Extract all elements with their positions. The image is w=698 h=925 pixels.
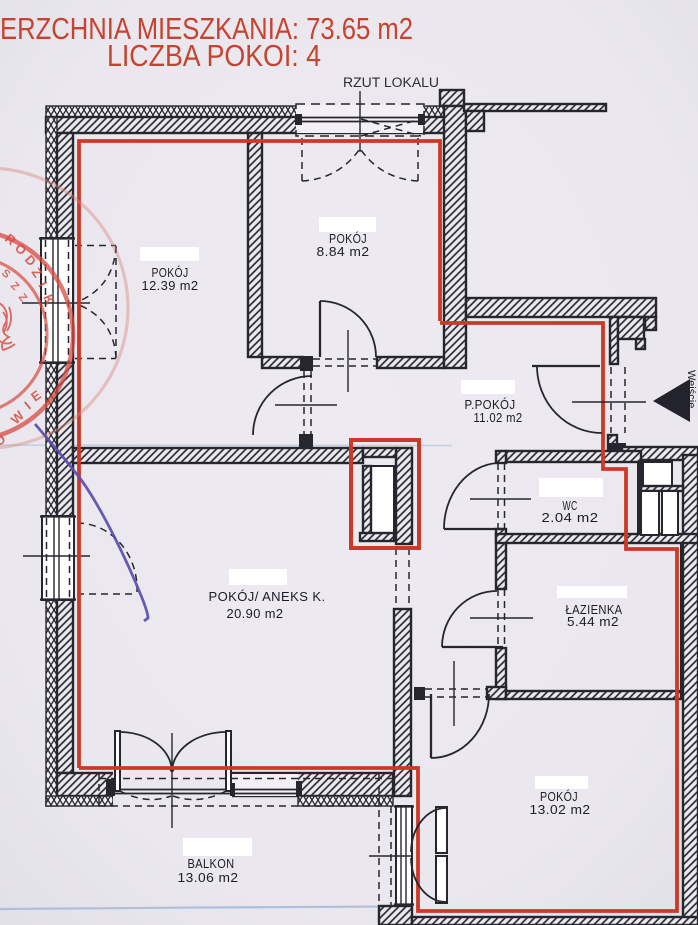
svg-text:POKÓJ: POKÓJ [152, 265, 189, 280]
svg-text:20.90 m2: 20.90 m2 [227, 607, 284, 621]
svg-text:2.04 m2: 2.04 m2 [542, 511, 599, 525]
svg-text:RZUT LOKALU: RZUT LOKALU [343, 75, 439, 90]
svg-text:P.POKÓJ: P.POKÓJ [465, 397, 516, 412]
svg-text:POKÓJ: POKÓJ [540, 789, 578, 804]
svg-text:12.39 m2: 12.39 m2 [142, 279, 199, 293]
svg-text:POKÓJ: POKÓJ [329, 231, 367, 246]
svg-text:11.02 m2: 11.02 m2 [474, 411, 523, 425]
svg-text:Wejście: Wejście [685, 370, 697, 408]
svg-text:5.44 m2: 5.44 m2 [567, 615, 619, 629]
svg-text:8.84 m2: 8.84 m2 [317, 245, 370, 259]
svg-text:13.02 m2: 13.02 m2 [530, 803, 591, 817]
svg-text:BALKON: BALKON [188, 857, 235, 871]
svg-text:13.06 m2: 13.06 m2 [178, 871, 239, 885]
svg-text:LICZBA POKOI: 4: LICZBA POKOI: 4 [107, 38, 321, 73]
svg-text:POKÓJ/ ANEKS K.: POKÓJ/ ANEKS K. [209, 589, 326, 604]
